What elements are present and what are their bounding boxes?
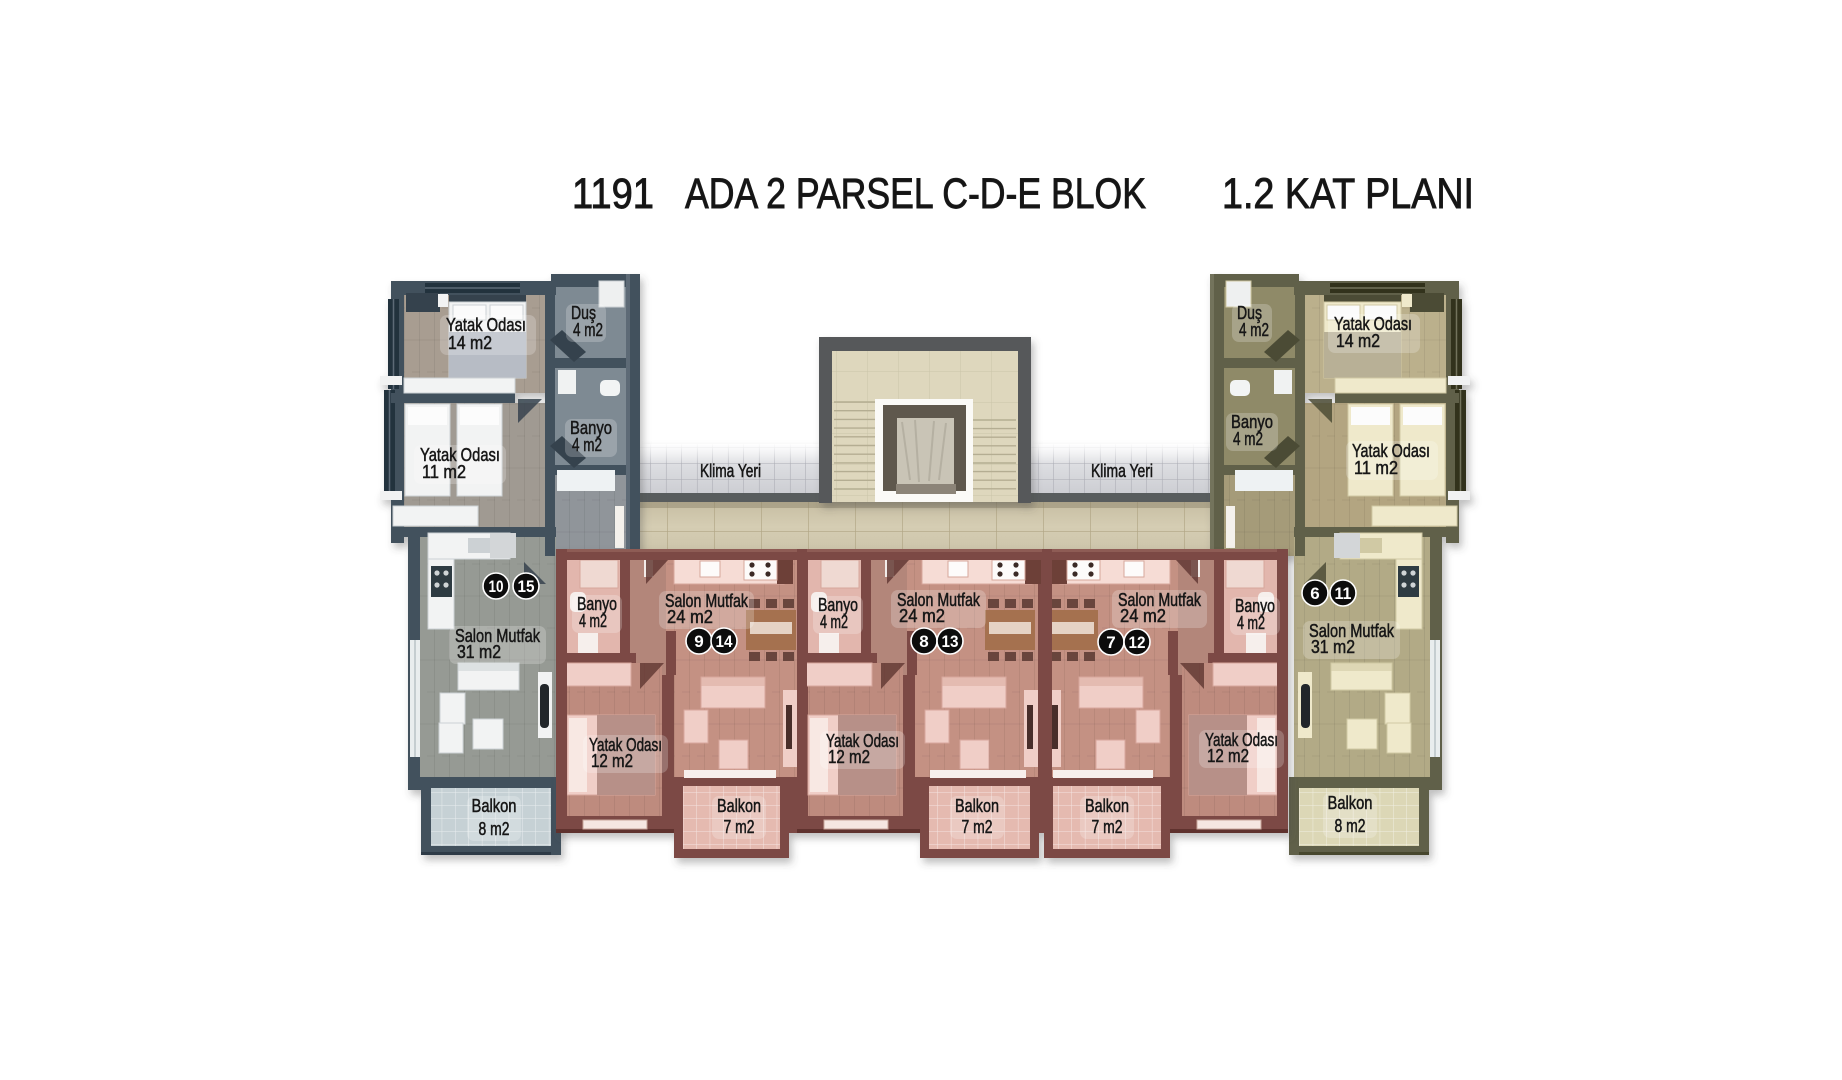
svg-text:8 m2: 8 m2: [1335, 815, 1366, 836]
svg-text:11: 11: [1335, 584, 1352, 603]
svg-text:12 m2: 12 m2: [828, 746, 870, 767]
svg-text:7 m2: 7 m2: [962, 816, 993, 837]
svg-text:6: 6: [1310, 584, 1319, 603]
svg-text:Balkon: Balkon: [717, 795, 761, 816]
svg-text:Balkon: Balkon: [955, 795, 999, 816]
svg-text:Balkon: Balkon: [1085, 795, 1129, 816]
svg-text:1191: 1191: [572, 170, 654, 218]
svg-text:13: 13: [942, 632, 959, 651]
svg-text:24 m2: 24 m2: [1120, 605, 1166, 626]
svg-text:12 m2: 12 m2: [591, 750, 633, 771]
svg-text:15: 15: [518, 577, 535, 596]
svg-text:Balkon: Balkon: [472, 795, 517, 816]
svg-text:4 m2: 4 m2: [572, 434, 602, 455]
svg-text:14 m2: 14 m2: [448, 332, 492, 353]
svg-text:10: 10: [489, 577, 504, 596]
svg-text:4 m2: 4 m2: [573, 319, 603, 340]
svg-text:7 m2: 7 m2: [724, 816, 755, 837]
svg-text:24 m2: 24 m2: [899, 605, 945, 626]
svg-text:ADA 2 PARSEL C-D-E BLOK: ADA 2 PARSEL C-D-E BLOK: [685, 170, 1146, 218]
svg-text:31 m2: 31 m2: [457, 641, 501, 662]
svg-text:7: 7: [1106, 633, 1115, 652]
svg-text:4 m2: 4 m2: [1239, 319, 1269, 340]
svg-text:Klima Yeri: Klima Yeri: [700, 460, 761, 481]
svg-text:8: 8: [919, 632, 928, 651]
svg-text:11 m2: 11 m2: [1354, 457, 1398, 478]
svg-text:14: 14: [716, 632, 733, 651]
svg-text:31 m2: 31 m2: [1311, 636, 1355, 657]
svg-text:Klima Yeri: Klima Yeri: [1091, 460, 1153, 481]
svg-text:4 m2: 4 m2: [820, 611, 848, 632]
svg-text:Balkon: Balkon: [1328, 792, 1373, 813]
svg-text:14 m2: 14 m2: [1336, 330, 1380, 351]
svg-text:4 m2: 4 m2: [1237, 612, 1265, 633]
svg-text:12: 12: [1129, 633, 1146, 652]
svg-text:4 m2: 4 m2: [579, 610, 607, 631]
svg-text:1.2 KAT PLANI: 1.2 KAT PLANI: [1222, 170, 1474, 218]
svg-text:24 m2: 24 m2: [667, 606, 713, 627]
svg-text:7 m2: 7 m2: [1092, 816, 1123, 837]
svg-text:11 m2: 11 m2: [422, 461, 466, 482]
svg-text:12 m2: 12 m2: [1207, 745, 1249, 766]
svg-text:9: 9: [694, 632, 703, 651]
svg-text:8 m2: 8 m2: [479, 818, 510, 839]
svg-text:4 m2: 4 m2: [1233, 428, 1263, 449]
